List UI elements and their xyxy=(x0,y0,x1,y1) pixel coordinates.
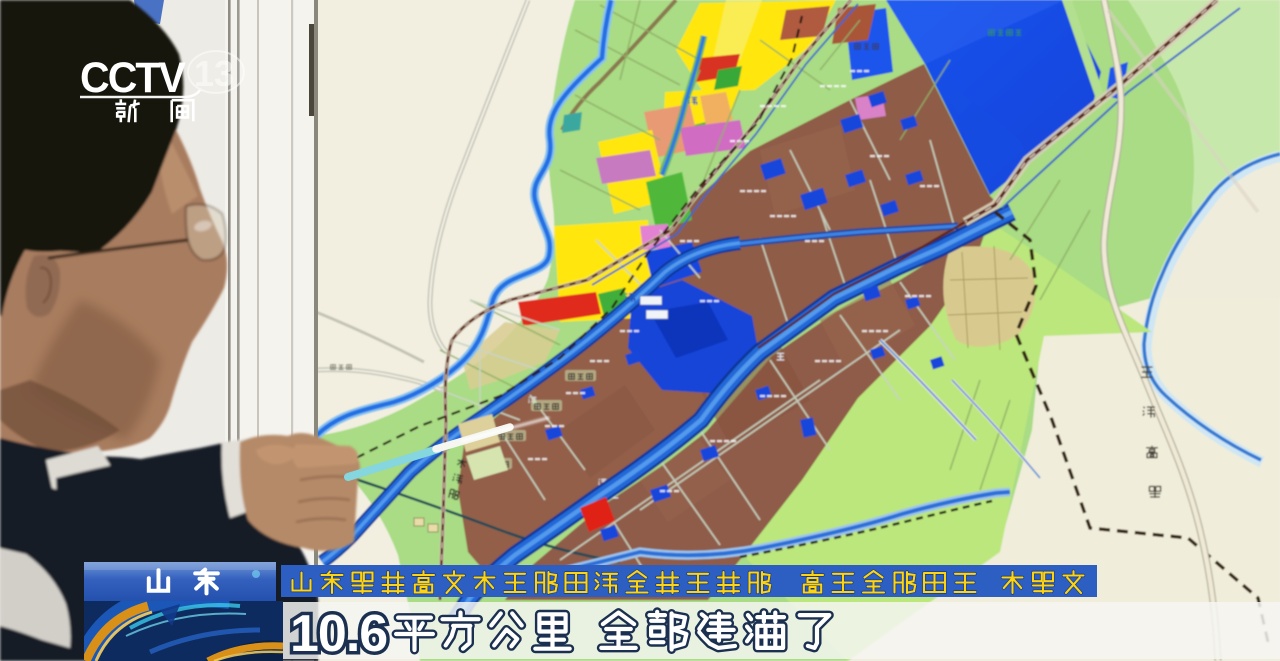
svg-text:10.6: 10.6 xyxy=(290,605,387,661)
svg-text:13: 13 xyxy=(194,53,234,94)
svg-text:CCTV: CCTV xyxy=(80,54,186,102)
